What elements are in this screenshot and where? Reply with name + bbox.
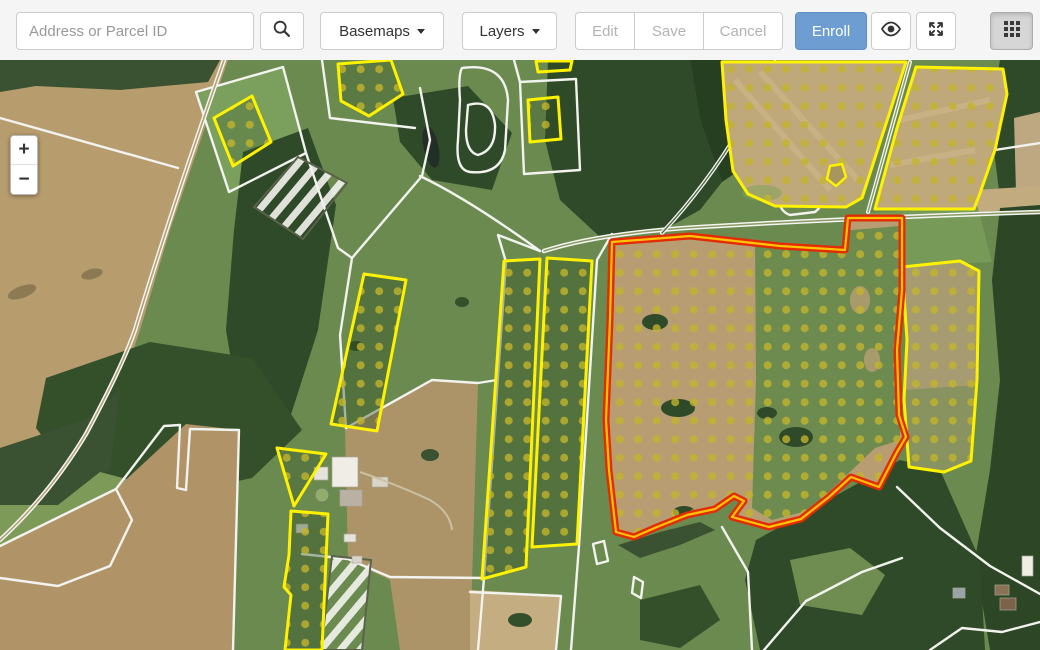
parcel-map-app: Basemaps Layers Edit Save Cancel Enroll [0,0,1040,650]
caret-down-icon [417,29,425,34]
fullscreen-button[interactable] [916,12,956,50]
visibility-button[interactable] [871,12,911,50]
save-button[interactable]: Save [634,12,704,50]
caret-down-icon [532,29,540,34]
expand-arrows-icon [925,18,947,44]
grid-icon [1002,19,1022,43]
enrolled-parcel[interactable] [902,261,979,472]
search-input[interactable] [16,12,254,50]
zoom-in-button[interactable]: + [11,136,37,165]
toolbar: Basemaps Layers Edit Save Cancel Enroll [0,0,1040,60]
cancel-button[interactable]: Cancel [703,12,783,50]
basemaps-label: Basemaps [339,23,410,40]
eye-icon [879,17,903,45]
zoom-out-button[interactable]: − [11,165,37,194]
basemaps-dropdown-button[interactable]: Basemaps [320,12,444,50]
apps-grid-button[interactable] [990,12,1033,50]
enrolled-parcel[interactable] [284,511,328,650]
enroll-button[interactable]: Enroll [795,12,867,50]
layers-label: Layers [479,23,524,40]
edit-button[interactable]: Edit [575,12,635,50]
search-button[interactable] [260,12,304,50]
map-canvas[interactable]: + − [0,60,1040,650]
layers-dropdown-button[interactable]: Layers [462,12,557,50]
map-zoom-control: + − [10,135,38,195]
search-icon [271,18,293,44]
satellite-map[interactable] [0,60,1040,650]
